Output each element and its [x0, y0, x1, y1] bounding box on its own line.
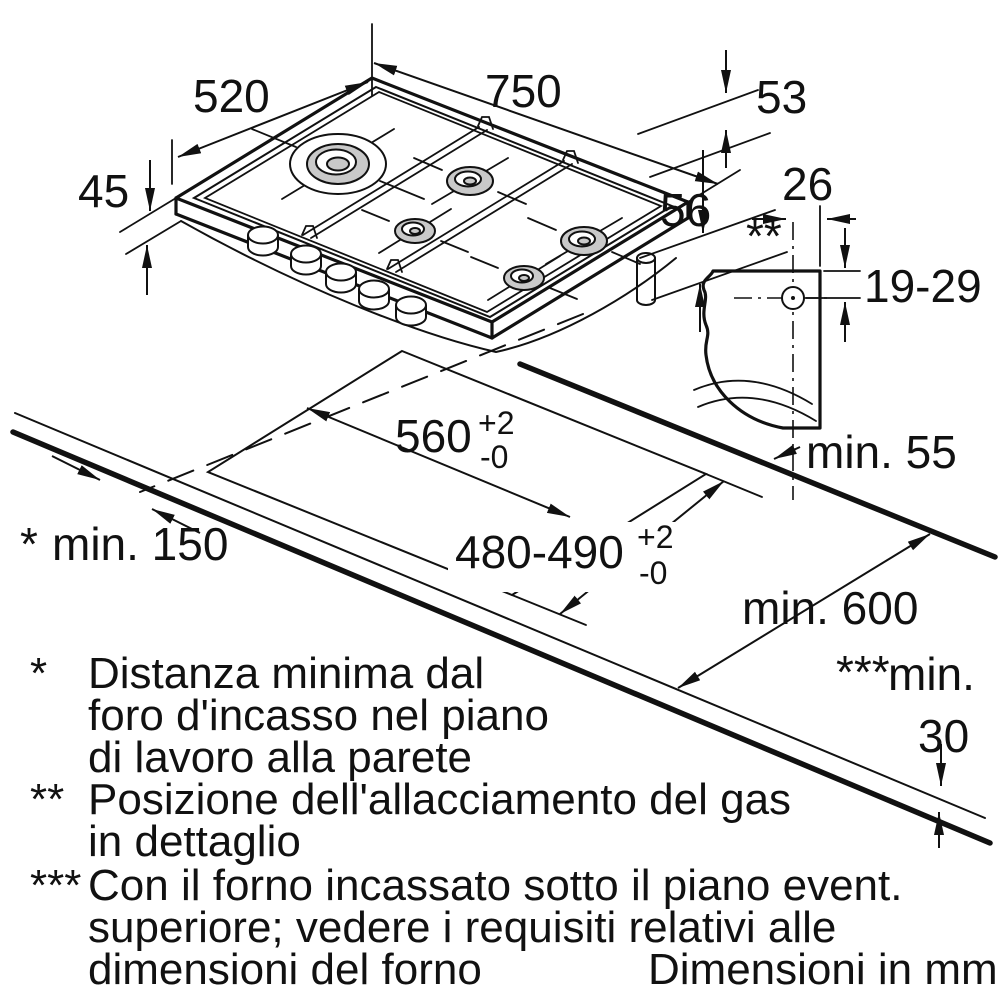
dimension-min-55: min. 55 — [774, 426, 957, 478]
gas-connection-center — [791, 296, 795, 300]
min-below-label: min. — [888, 648, 975, 700]
footnote-2-line-2: in dettaglio — [88, 817, 301, 866]
dimension-750: 750 — [372, 24, 740, 202]
cutout-depth-tol-plus: +2 — [637, 519, 673, 555]
dim-width-label: 750 — [485, 65, 562, 117]
cutout-depth-label: 480-490 — [455, 526, 624, 578]
dimension-min-150: * min. 150 — [20, 456, 228, 570]
extension-line — [706, 474, 762, 497]
units-note: Dimensioni in mm — [648, 945, 998, 994]
min-below-value: 30 — [918, 710, 969, 762]
dim-56-label: 56 — [660, 184, 711, 236]
burner-back-middle — [414, 158, 526, 204]
knob — [396, 297, 426, 326]
reference-line — [638, 90, 758, 134]
dim-height-label: 45 — [78, 165, 129, 217]
dim-19-29-label: 19-29 — [864, 260, 982, 312]
installation-diagram: 750 520 45 53 56 — [0, 0, 1000, 1000]
dimension-min-30: *** min. 30 — [836, 646, 975, 848]
dimension-19-29: 19-29 — [806, 228, 982, 342]
gas-pipe — [637, 253, 655, 305]
extension-line — [512, 595, 586, 625]
cutout-width-label: 560 — [395, 410, 472, 462]
wok-burner — [252, 129, 424, 199]
dim-depth-label: 520 — [193, 70, 270, 122]
reference-line — [650, 133, 770, 177]
projection-dashed-line — [140, 314, 583, 492]
cutout-width-tol-minus: -0 — [480, 439, 508, 475]
break-line — [698, 398, 816, 421]
dimension-45: 45 — [78, 160, 181, 295]
knob — [359, 281, 389, 310]
knob — [291, 246, 321, 275]
installation-diagram-page: 750 520 45 53 56 — [0, 0, 1000, 1000]
dimension-560: 560 +2 -0 — [307, 405, 570, 517]
hob-inner-tray-inner — [205, 92, 661, 312]
burner-front-middle — [362, 209, 468, 253]
knob — [248, 227, 278, 256]
gas-detail-marker: ** — [746, 210, 782, 262]
dim-53-label: 53 — [756, 71, 807, 123]
footnote-3-line-3: dimensioni del forno — [88, 945, 482, 994]
min-side-label: min. 150 — [52, 518, 228, 570]
dimension-480-490: 480-490 +2 -0 — [448, 481, 724, 614]
dim-26-label: 26 — [782, 158, 833, 210]
min-rear-label: min. 55 — [806, 426, 957, 478]
footnote-2-marker: ** — [30, 775, 64, 824]
knob — [326, 264, 356, 293]
min-worktop-depth-label: min. 600 — [742, 582, 918, 634]
footnotes: * Distanza minima dal foro d'incasso nel… — [30, 649, 998, 994]
break-line — [694, 381, 812, 404]
min-side-marker: * — [20, 518, 38, 570]
footnote-1-marker: * — [30, 649, 47, 698]
footnote-3-marker: *** — [30, 861, 81, 910]
extension-line — [126, 221, 181, 254]
leader-arrow — [774, 447, 800, 459]
cutout-width-tol-plus: +2 — [478, 405, 514, 441]
cutout-depth-tol-minus: -0 — [639, 555, 667, 591]
dimension-26: 26 ** — [746, 158, 856, 266]
min-below-marker: *** — [836, 646, 890, 698]
